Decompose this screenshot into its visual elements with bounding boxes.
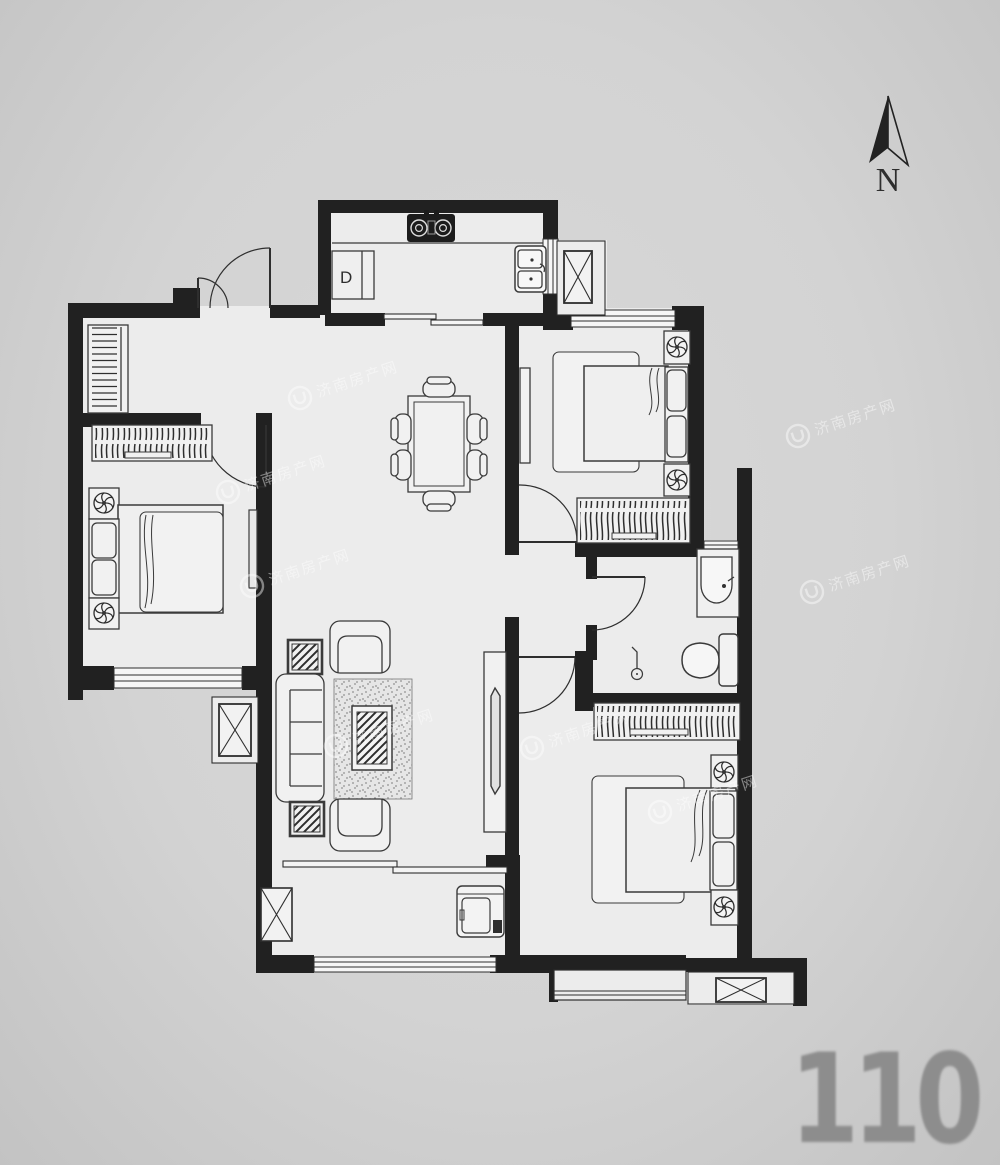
wardrobe: [577, 498, 690, 543]
pinwheel-icon: [714, 896, 734, 917]
pinwheel-icon: [714, 761, 734, 782]
kitchen-appliance: D: [332, 251, 374, 299]
svg-text:济南房产网: 济南房产网: [827, 553, 913, 595]
vanity-sink-icon: [697, 549, 739, 617]
pillow: [713, 842, 734, 886]
ac-platform-master: [688, 972, 794, 1004]
side-table: [290, 802, 324, 836]
sofa: [276, 674, 324, 802]
pinwheel-icon: [94, 492, 114, 513]
watermark-logo-u-icon: [792, 430, 805, 443]
balcony: [457, 886, 504, 937]
flue-shaft-kitchen: [557, 241, 605, 315]
watermark: 济南房产网: [798, 550, 913, 606]
side-table: [288, 640, 322, 674]
pillow: [667, 370, 686, 411]
shoe-cabinet: [88, 325, 128, 413]
floor-plan-screenshot: D: [0, 0, 1000, 1165]
master-bedroom: [592, 703, 740, 925]
window-balcony: [314, 957, 496, 972]
washing-machine-icon: [457, 886, 504, 937]
pinwheel-icon: [94, 602, 114, 623]
armchair: [330, 621, 390, 673]
area-number: 110: [790, 1038, 978, 1162]
nightstand: [89, 598, 119, 629]
watermark-logo-u-icon: [806, 586, 819, 599]
compass-label: N: [876, 162, 901, 199]
svg-text:济南房产网: 济南房产网: [813, 397, 899, 439]
pillow: [92, 560, 116, 595]
appliance-label: D: [340, 268, 352, 287]
dresser: [520, 368, 530, 463]
floor-plan-canvas: D: [0, 0, 1000, 1165]
ac-platform-left: [212, 697, 258, 763]
flue-balcony: [261, 888, 292, 941]
nightstand: [711, 890, 738, 925]
pinwheel-icon: [667, 336, 687, 357]
armchair: [330, 799, 390, 851]
bay-window-master: [554, 970, 686, 1000]
entry-closet: [92, 425, 212, 461]
nightstand: [664, 331, 690, 364]
entry-door: [198, 248, 270, 308]
tv-cabinet: [484, 652, 506, 832]
bed: [89, 505, 223, 613]
pinwheel-icon: [667, 469, 687, 490]
nightstand: [664, 464, 690, 496]
stove-icon: [407, 210, 455, 242]
nightstand: [89, 488, 119, 519]
pillow: [667, 416, 686, 457]
bed: [553, 352, 688, 472]
kitchen-sink-icon: [515, 246, 546, 292]
north-arrow-icon: N: [869, 96, 908, 199]
dining-table: [408, 396, 470, 492]
pillow: [92, 523, 116, 558]
window-bedroom-left: [114, 668, 242, 688]
tv-icon: [491, 688, 500, 794]
watermark: 济南房产网: [784, 394, 899, 450]
